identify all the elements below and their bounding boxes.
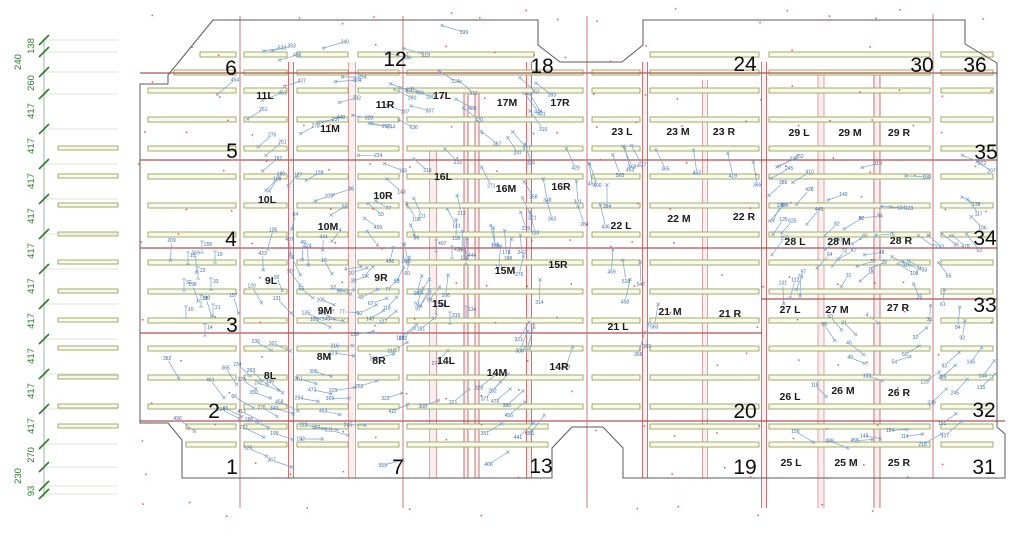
mark-value: 32: [913, 335, 919, 341]
zone-label: 17R: [550, 97, 570, 109]
mark-leader: [613, 155, 619, 173]
red-dot: [757, 515, 759, 517]
mark-value: 411: [388, 409, 396, 415]
red-dot: [571, 283, 573, 285]
mark-value: 444: [319, 235, 328, 241]
red-dot: [142, 319, 144, 321]
mark-value: 123: [905, 206, 914, 212]
mark-value: 127: [379, 319, 388, 325]
mark-value: 351: [531, 90, 540, 96]
mark-value: 238: [491, 244, 500, 250]
mark-value: 490: [173, 416, 182, 422]
red-dot: [226, 516, 228, 518]
formwork-bar: [358, 442, 399, 447]
zone-label: 22 R: [733, 211, 756, 223]
red-dot: [645, 45, 647, 47]
mark-value: 198: [188, 282, 197, 288]
mark-leader: [908, 434, 923, 436]
red-dot: [874, 282, 876, 284]
mark-leader: [497, 389, 510, 400]
mark-value: 369: [643, 344, 652, 350]
mark-value: 625: [788, 218, 797, 224]
grid-number: 36: [963, 54, 986, 77]
mark-value: 478: [961, 244, 970, 250]
mark-value: 406: [484, 462, 493, 468]
mark-value: 419: [729, 173, 738, 179]
mark-leader: [826, 327, 835, 341]
red-dot: [670, 208, 672, 210]
formwork-bar: [650, 442, 759, 447]
mark-value: 190: [202, 296, 211, 302]
formwork-bar: [58, 318, 118, 322]
mark-value: 14: [207, 325, 213, 331]
formwork-bar: [650, 375, 759, 380]
mark-value: 382: [163, 356, 172, 362]
mark-value: 106: [317, 297, 326, 303]
mark-value: 224: [238, 377, 247, 383]
grid-number: 18: [530, 55, 553, 78]
red-dot: [837, 283, 839, 285]
mark-value: 169: [192, 250, 201, 256]
mark-value: 452: [693, 170, 702, 176]
formwork-bar: [186, 442, 236, 447]
zone-label: 22 M: [667, 213, 691, 225]
formwork-bar: [769, 404, 930, 409]
red-dot: [717, 364, 719, 366]
formwork-bar: [650, 346, 759, 351]
formwork-bar: [650, 232, 759, 237]
red-dot: [721, 274, 723, 276]
formwork-bar: [769, 117, 930, 122]
mark-value: 77: [339, 309, 345, 315]
zone-label: 25 L: [780, 457, 802, 469]
red-dot: [445, 46, 447, 48]
dimension-label: 240: [13, 54, 24, 70]
mark-value: 452: [588, 182, 597, 188]
mark-leader: [196, 256, 197, 273]
formwork-bar: [650, 318, 759, 323]
mark-leader: [491, 452, 508, 463]
formwork-bar: [941, 318, 993, 323]
red-dot: [409, 509, 411, 511]
dimension-label: 417: [26, 243, 37, 259]
formwork-bar: [358, 174, 399, 179]
red-dot: [975, 166, 977, 168]
red-dot: [675, 8, 677, 10]
mark-leader: [728, 153, 732, 173]
formwork-bar: [358, 146, 399, 151]
mark-leader: [332, 431, 348, 436]
mark-value: 488: [825, 439, 834, 445]
grid-number: 20: [733, 400, 756, 423]
grid-number: 19: [733, 456, 756, 479]
mark-value: 366: [221, 365, 230, 371]
red-dot: [494, 52, 496, 54]
mark-leader: [513, 132, 525, 146]
zone-label: 8M: [317, 351, 332, 363]
mark-leader: [612, 249, 613, 269]
formwork-bar: [941, 174, 993, 179]
mark-value: 94: [877, 214, 883, 220]
red-dot: [138, 163, 140, 165]
grid-number: 12: [383, 48, 406, 71]
red-dot: [570, 239, 572, 241]
mark-value: 45: [846, 341, 852, 347]
zone-label: 14M: [487, 367, 508, 379]
formwork-bar: [148, 117, 236, 122]
mark-value: 4: [866, 312, 869, 318]
red-dot: [259, 277, 261, 279]
mark-value: 26: [917, 295, 923, 301]
mark-value: 334: [451, 79, 460, 85]
mark-value: 65: [862, 233, 868, 239]
zone-label: 8L: [264, 370, 277, 382]
mark-value: 307: [401, 109, 410, 115]
red-dot: [863, 464, 865, 466]
mark-value: 136: [351, 332, 360, 338]
red-dot: [255, 462, 257, 464]
mark-value: 458: [275, 400, 284, 406]
mark-value: 399: [460, 30, 469, 36]
mark-value: 156: [791, 429, 800, 435]
mark-value: 49: [847, 355, 853, 361]
red-dot: [214, 316, 216, 318]
formwork-bar: [244, 289, 287, 294]
formwork-bar: [941, 346, 993, 351]
mark-leader: [354, 268, 367, 272]
mark-leader: [656, 150, 664, 167]
mark-leader: [798, 433, 813, 442]
mark-value: 92: [939, 244, 945, 250]
red-dot: [899, 9, 901, 11]
dimension-label: 417: [26, 418, 37, 434]
mark-leader: [404, 244, 407, 259]
formwork-bar: [941, 260, 993, 265]
red-dot: [596, 20, 598, 22]
mark-value: 49: [358, 295, 364, 301]
zone-label: 21 R: [719, 308, 742, 320]
mark-value: 340: [341, 40, 350, 46]
formwork-bar: [592, 260, 640, 265]
formwork-bar: [244, 318, 287, 323]
red-dot: [414, 318, 416, 320]
mark-leader: [947, 353, 960, 364]
mark-value: 229: [329, 388, 338, 394]
mark-leader: [324, 43, 342, 48]
formwork-bar: [58, 146, 118, 150]
mark-value: 242: [254, 380, 263, 386]
red-dot: [610, 246, 612, 248]
mark-value: 365: [661, 167, 670, 173]
formwork-bar: [58, 424, 118, 428]
mark-value: 97: [414, 301, 420, 307]
dimension-label: 270: [26, 447, 37, 463]
grid-number: 34: [973, 227, 997, 250]
mark-value: 407: [438, 241, 447, 247]
mark-leader: [934, 389, 947, 401]
mark-value: 138: [972, 202, 981, 208]
pink-band: [643, 62, 648, 478]
mark-value: 461: [206, 378, 215, 384]
red-dot: [872, 510, 874, 512]
formwork-bar: [407, 203, 583, 208]
mark-value: 368: [634, 352, 643, 358]
mark-value: 65: [299, 287, 305, 293]
mark-value: 4: [339, 228, 342, 234]
grid-number: 7: [392, 456, 404, 479]
zone-label: 26 R: [888, 387, 911, 399]
mark-value: 306: [309, 369, 318, 375]
red-dot: [303, 125, 305, 127]
mark-value: 132: [460, 255, 469, 261]
mark-value: 239: [251, 339, 260, 345]
mark-value: 271: [487, 183, 496, 189]
mark-value: 144: [979, 374, 988, 380]
mark-value: 276: [257, 405, 266, 411]
formwork-bar: [769, 146, 930, 151]
red-dot: [373, 16, 375, 18]
mark-value: 363: [548, 216, 557, 222]
zone-label: 11M: [320, 123, 340, 135]
mark-value: 295: [204, 242, 213, 248]
formwork-bar: [58, 203, 118, 207]
mark-value: 105: [269, 227, 278, 233]
formwork-bar: [941, 117, 993, 122]
red-dot: [593, 93, 595, 95]
formwork-bar: [941, 203, 993, 208]
red-dot: [144, 131, 146, 133]
formwork-bar: [148, 346, 236, 351]
red-dot: [479, 17, 481, 19]
formwork-bar: [769, 289, 930, 294]
formwork-bar: [769, 375, 930, 380]
zone-label: 9R: [374, 272, 388, 284]
red-dot: [381, 248, 383, 250]
mark-value: 420: [475, 117, 484, 123]
mark-leader: [331, 208, 342, 215]
red-dot: [527, 93, 529, 95]
mark-leader: [442, 25, 461, 31]
mark-value: 104: [897, 205, 906, 211]
red-dot: [988, 57, 990, 59]
red-dot: [251, 243, 253, 245]
dimension-label: 93: [26, 486, 37, 497]
zone-label: 16R: [551, 181, 571, 193]
red-dot: [151, 15, 153, 17]
formwork-bar: [592, 232, 640, 237]
red-dot: [942, 464, 944, 466]
red-dot: [991, 322, 993, 324]
zone-label: 9L: [265, 275, 278, 287]
formwork-bar: [148, 289, 236, 294]
mark-value: 367: [493, 142, 502, 148]
mark-value: 34: [916, 267, 922, 273]
mark-value: 365: [753, 182, 762, 188]
mark-value: 160: [923, 174, 932, 180]
red-dot: [409, 166, 411, 168]
red-dot: [556, 317, 558, 319]
red-dot: [859, 91, 861, 93]
grid-number: 5: [226, 140, 238, 163]
red-dot: [982, 18, 984, 20]
red-dot: [219, 96, 221, 98]
mark-value: 239: [522, 226, 531, 232]
mark-value: 297: [382, 124, 391, 130]
mark-leader: [957, 379, 967, 390]
red-dot: [406, 393, 408, 395]
mark-value: 222: [299, 422, 308, 428]
red-dot: [518, 477, 520, 479]
mark-leader: [640, 262, 641, 281]
mark-value: 29: [881, 260, 887, 266]
red-dot: [252, 134, 254, 136]
red-dot: [481, 424, 483, 426]
zone-label: 15L: [432, 298, 451, 310]
mark-value: 65: [946, 274, 952, 280]
grid-number: 4: [225, 228, 237, 251]
mark-value: 453: [319, 408, 328, 414]
mark-leader: [844, 220, 859, 229]
zone-label: 28 L: [784, 236, 806, 248]
mark-value: 209: [167, 238, 176, 244]
red-dot: [746, 353, 748, 355]
mark-value: 436: [601, 225, 610, 231]
red-dot: [299, 17, 301, 19]
red-dot: [827, 478, 829, 480]
mark-value: 66: [231, 394, 237, 400]
formwork-bar: [358, 232, 399, 237]
red-dot: [798, 359, 800, 361]
dimension-label: 417: [26, 208, 37, 224]
mark-value: 519: [422, 52, 431, 58]
mark-value: 4: [344, 267, 347, 273]
red-dot: [907, 476, 909, 478]
red-dot: [903, 282, 905, 284]
mark-value: 321: [528, 216, 537, 222]
formwork-bar: [58, 174, 118, 178]
mark-value: 50: [902, 352, 908, 358]
formwork-bar: [592, 117, 640, 122]
mark-value: 33: [213, 279, 219, 285]
red-dot: [533, 133, 535, 135]
formwork-bar: [58, 289, 118, 293]
mark-value: 527: [638, 163, 647, 169]
formwork-bar: [58, 346, 118, 350]
mark-value: 565: [616, 173, 625, 179]
mark-value: 351: [481, 431, 490, 437]
mark-value: 377: [522, 146, 531, 152]
mark-value: 218: [918, 442, 927, 448]
mark-value: 247: [513, 151, 522, 157]
mark-value: 31: [841, 320, 847, 326]
grid-number: 2: [208, 400, 220, 423]
red-dot: [595, 430, 597, 432]
red-dot: [571, 391, 573, 393]
mark-value: 233: [531, 230, 540, 236]
mark-value: 234: [233, 362, 242, 368]
grid-number: 30: [910, 54, 933, 77]
mark-value: 245: [951, 390, 960, 396]
red-dot: [186, 209, 188, 211]
zone-label: 29 M: [838, 127, 862, 139]
mark-value: 103: [863, 373, 872, 379]
red-dot: [985, 211, 987, 213]
mark-value: 328: [475, 386, 484, 392]
mark-value: 423: [258, 251, 267, 257]
mark-value: 181: [417, 326, 426, 332]
red-dot: [369, 163, 371, 165]
zone-label: 25 R: [888, 457, 911, 469]
zone-label: 10L: [258, 194, 277, 206]
red-dot: [789, 276, 791, 278]
formwork-bar: [148, 88, 236, 93]
mark-value: 47: [851, 248, 857, 254]
dimension-label: 230: [13, 468, 24, 484]
formwork-bar: [244, 52, 287, 57]
red-dot: [716, 432, 718, 434]
formwork-bar: [592, 346, 640, 351]
red-dot: [745, 121, 747, 123]
red-dot: [821, 504, 823, 506]
red-dot: [533, 324, 535, 326]
red-dot: [451, 126, 453, 128]
zone-label: 9M: [318, 305, 333, 317]
mark-value: 4: [376, 243, 379, 249]
mark-value: 456: [293, 53, 302, 59]
zone-label: 22 L: [610, 220, 632, 232]
red-dot: [941, 132, 943, 134]
mark-leader: [858, 440, 873, 441]
zone-label: 16M: [496, 183, 517, 195]
formwork-bar: [186, 424, 236, 429]
red-dot: [838, 364, 840, 366]
red-dot: [942, 95, 944, 97]
mark-leader: [797, 192, 808, 205]
dimension-label: 260: [26, 75, 37, 91]
mark-value: 22: [200, 268, 206, 274]
red-dot: [866, 362, 868, 364]
red-dot: [790, 202, 792, 204]
red-dot: [495, 322, 497, 324]
mark-leader: [207, 301, 212, 316]
zone-label: 14R: [549, 361, 569, 373]
red-dot: [762, 286, 764, 288]
formwork-bar: [941, 88, 993, 93]
mark-value: 114: [901, 434, 909, 440]
mark-value: 302: [523, 346, 532, 352]
mark-value: 188: [396, 335, 405, 341]
mark-value: 50: [378, 212, 384, 218]
mark-value: 367: [267, 458, 276, 464]
zone-label: 10R: [373, 190, 393, 202]
formwork-bar: [650, 146, 759, 151]
mark-value: 55: [405, 259, 411, 265]
mark-leader: [333, 190, 349, 195]
mark-value: 148: [860, 433, 869, 439]
mark-value: 210: [387, 349, 396, 355]
red-dot: [556, 132, 558, 134]
mark-value: 98: [414, 291, 420, 297]
formwork-bar: [407, 117, 583, 122]
dimension-label: 417: [26, 173, 37, 189]
formwork-bar: [407, 346, 583, 351]
red-dot: [214, 424, 216, 426]
mark-value: 261: [294, 376, 303, 382]
red-dot: [290, 474, 292, 476]
dimension-label: 417: [26, 278, 37, 294]
mark-value: 473: [308, 387, 317, 393]
red-dot: [871, 119, 873, 121]
